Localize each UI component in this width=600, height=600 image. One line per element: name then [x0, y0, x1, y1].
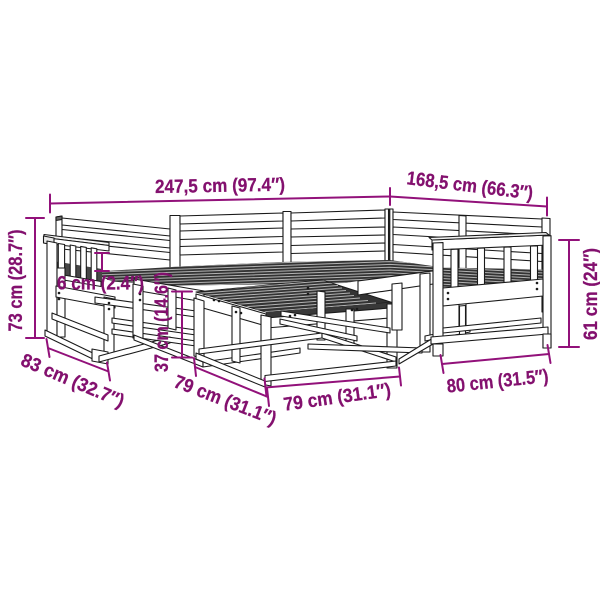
- svg-text:247,5 cm (97.4″): 247,5 cm (97.4″): [155, 175, 285, 198]
- svg-text:6 cm (2.4″): 6 cm (2.4″): [57, 273, 144, 294]
- svg-text:37 cm (14.6″): 37 cm (14.6″): [152, 272, 173, 372]
- svg-text:73 cm (28.7″): 73 cm (28.7″): [6, 230, 27, 332]
- svg-text:61 cm (24″): 61 cm (24″): [581, 248, 600, 340]
